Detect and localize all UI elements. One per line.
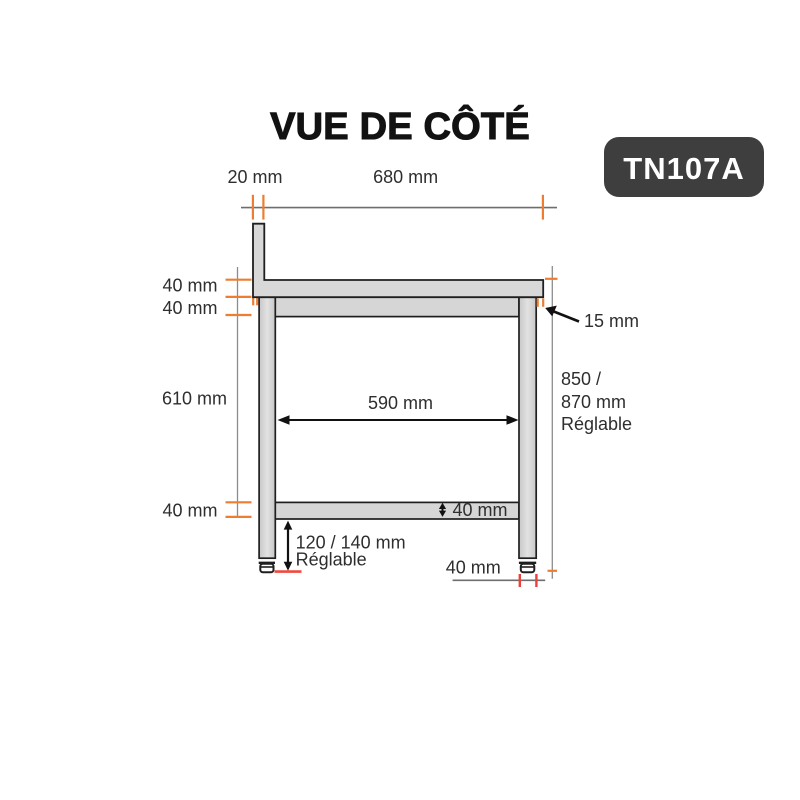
svg-text:TN107A: TN107A (623, 151, 744, 186)
svg-text:Réglable: Réglable (296, 550, 367, 570)
svg-text:40 mm: 40 mm (446, 558, 501, 578)
svg-text:40 mm: 40 mm (162, 298, 217, 318)
svg-text:40 mm: 40 mm (162, 275, 217, 295)
svg-text:610 mm: 610 mm (162, 389, 227, 409)
svg-text:15 mm: 15 mm (584, 311, 639, 331)
svg-text:870 mm: 870 mm (561, 392, 626, 412)
svg-text:850 /: 850 / (561, 369, 601, 389)
svg-text:590 mm: 590 mm (368, 393, 433, 413)
svg-text:VUE DE CÔTÉ: VUE DE CÔTÉ (270, 103, 530, 148)
svg-text:20 mm: 20 mm (227, 167, 282, 187)
svg-text:Réglable: Réglable (561, 414, 632, 434)
svg-text:680 mm: 680 mm (373, 167, 438, 187)
svg-text:40 mm: 40 mm (162, 500, 217, 520)
svg-text:40 mm: 40 mm (453, 500, 508, 520)
